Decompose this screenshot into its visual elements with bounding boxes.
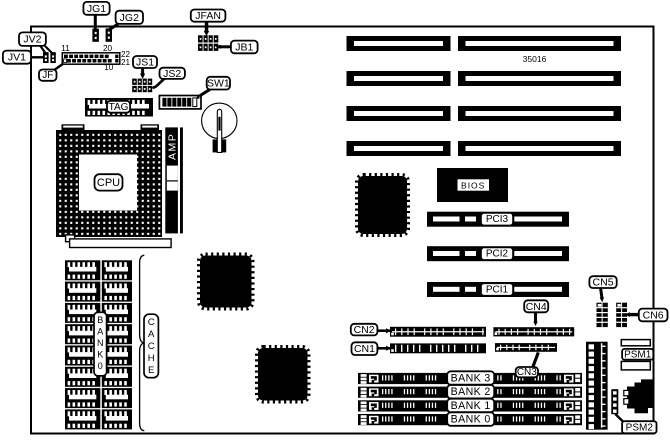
svg-text:CN4: CN4	[526, 301, 547, 313]
svg-text:0: 0	[98, 361, 103, 371]
svg-text:PCI3: PCI3	[486, 214, 509, 225]
svg-text:H: H	[148, 353, 155, 364]
svg-text:JB1: JB1	[235, 41, 253, 53]
svg-text:C: C	[148, 341, 155, 352]
svg-text:PCI2: PCI2	[486, 249, 509, 260]
svg-text:CPU: CPU	[97, 177, 120, 189]
svg-text:BANK 3: BANK 3	[451, 373, 491, 385]
svg-text:BANK 0: BANK 0	[451, 414, 491, 426]
svg-text:35016: 35016	[523, 54, 547, 64]
svg-text:JS1: JS1	[136, 57, 154, 69]
svg-text:BIOS: BIOS	[461, 181, 485, 191]
svg-text:JS2: JS2	[163, 68, 181, 80]
svg-text:SW1: SW1	[207, 78, 230, 90]
svg-text:20: 20	[103, 44, 113, 53]
svg-text:A: A	[148, 329, 155, 340]
svg-text:JV2: JV2	[23, 34, 41, 46]
svg-text:JG1: JG1	[87, 3, 106, 15]
svg-text:11: 11	[61, 44, 70, 53]
svg-text:JFAN: JFAN	[195, 10, 221, 22]
svg-text:E: E	[148, 365, 154, 376]
svg-text:BANK 2: BANK 2	[451, 386, 491, 398]
svg-text:PCI1: PCI1	[486, 284, 509, 295]
svg-text:JG2: JG2	[120, 12, 139, 24]
svg-text:A: A	[97, 326, 103, 336]
svg-text:BANK 1: BANK 1	[451, 400, 491, 412]
svg-text:AMP: AMP	[167, 133, 179, 160]
svg-text:CN5: CN5	[593, 277, 614, 289]
svg-text:JF: JF	[42, 70, 53, 81]
svg-text:B: B	[97, 315, 103, 325]
svg-text:10: 10	[104, 63, 114, 72]
svg-text:CN3: CN3	[517, 367, 537, 378]
svg-text:CN6: CN6	[643, 309, 664, 321]
svg-text:CN1: CN1	[354, 343, 375, 355]
svg-text:PSM1: PSM1	[624, 349, 652, 360]
svg-text:JV1: JV1	[8, 52, 26, 64]
svg-text:21: 21	[121, 58, 131, 67]
svg-text:N: N	[97, 338, 104, 348]
svg-text:C: C	[148, 317, 155, 328]
svg-text:TAG: TAG	[109, 102, 129, 113]
svg-text:K: K	[97, 349, 103, 359]
svg-text:PSM2: PSM2	[626, 422, 654, 433]
svg-text:CN2: CN2	[354, 324, 375, 336]
